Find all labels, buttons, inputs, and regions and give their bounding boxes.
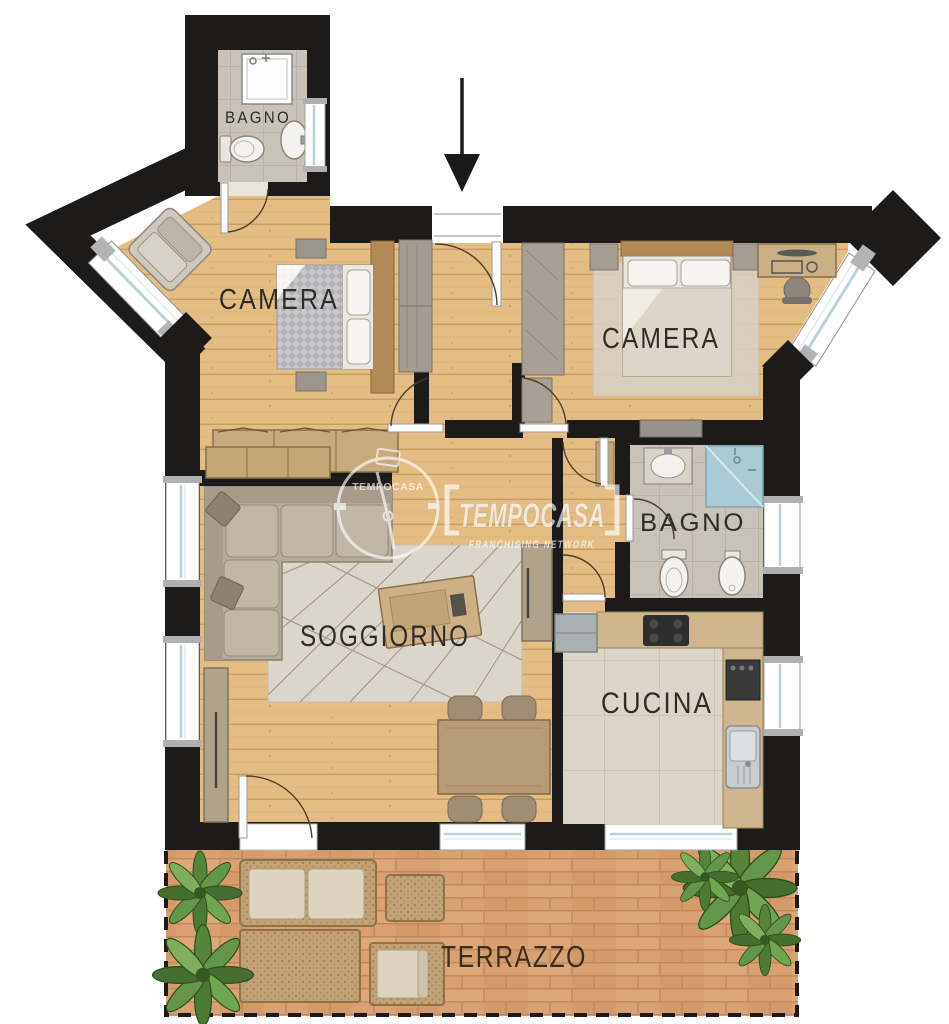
fridge-icon: [555, 614, 597, 652]
sink-icon: [644, 448, 692, 484]
sideboard-icon: [206, 447, 330, 478]
wall: [567, 420, 615, 438]
bench-icon: [296, 372, 326, 391]
bench-icon: [296, 239, 326, 258]
plant-icon: [729, 904, 800, 975]
terrace-lounge-chair-icon: [370, 943, 444, 1005]
window-icon: [761, 656, 803, 736]
terrace-side-table-icon: [386, 875, 444, 921]
window-icon: [163, 476, 202, 587]
watermark-subtitle-text: FRANCHISING NETWORK: [469, 539, 595, 551]
watermark-dash: [334, 503, 346, 510]
wall: [165, 350, 200, 850]
bookcase-icon: [522, 545, 552, 641]
room-label-camera-left: CAMERA: [219, 284, 339, 316]
watermark-dash: [428, 503, 437, 509]
room-label-bagno-top: BAGNO: [225, 108, 291, 127]
wall: [615, 542, 630, 601]
window-icon: [440, 824, 525, 850]
window-icon: [163, 636, 202, 747]
wall: [445, 420, 523, 438]
floorplan-svg: BAGNO: [0, 0, 949, 1024]
plant-icon: [158, 851, 242, 935]
room-label-bagno-right: BAGNO: [640, 509, 746, 537]
wardrobe-icon: [399, 240, 432, 372]
nightstand-icon: [590, 244, 618, 270]
wardrobe-icon: [522, 243, 564, 375]
tall-cabinet-icon: [204, 668, 228, 822]
plant-icon: [153, 925, 254, 1024]
shower-icon: [242, 54, 292, 104]
terrazzo-room: [153, 831, 801, 1024]
window-icon: [303, 98, 327, 172]
wall: [330, 206, 872, 243]
watermark-brand-text: TEMPOCASA: [459, 497, 605, 535]
desk-icon: [758, 244, 836, 277]
bench-icon: [640, 420, 702, 437]
toilet-icon: [660, 550, 688, 597]
bagno-right-room: BAGNO: [626, 445, 763, 598]
double-bed-icon: [621, 241, 733, 376]
wardrobe-icon: [522, 378, 552, 422]
watermark-logo-text: TEMPOCASA: [352, 481, 424, 493]
plant-icon: [671, 843, 738, 910]
room-label-terrazzo: TERRAZZO: [441, 939, 587, 974]
room-label-cucina: CUCINA: [601, 687, 713, 720]
oven-icon: [726, 660, 760, 700]
shower-icon: [706, 446, 763, 507]
toilet-icon: [220, 136, 264, 162]
window-icon: [761, 496, 803, 574]
room-label-soggiorno: SOGGIORNO: [300, 620, 470, 653]
terrace-sofa-icon: [240, 860, 376, 926]
terrace-table-icon: [240, 930, 360, 1002]
entrance-arrow-icon: [444, 78, 480, 192]
nightstand-icon: [733, 244, 761, 270]
kitchen-sink-icon: [726, 726, 760, 788]
cooktop-icon: [643, 615, 689, 646]
floorplan-image: BAGNO: [0, 0, 949, 1024]
window-icon: [605, 824, 737, 850]
room-label-camera-right: CAMERA: [602, 323, 720, 355]
